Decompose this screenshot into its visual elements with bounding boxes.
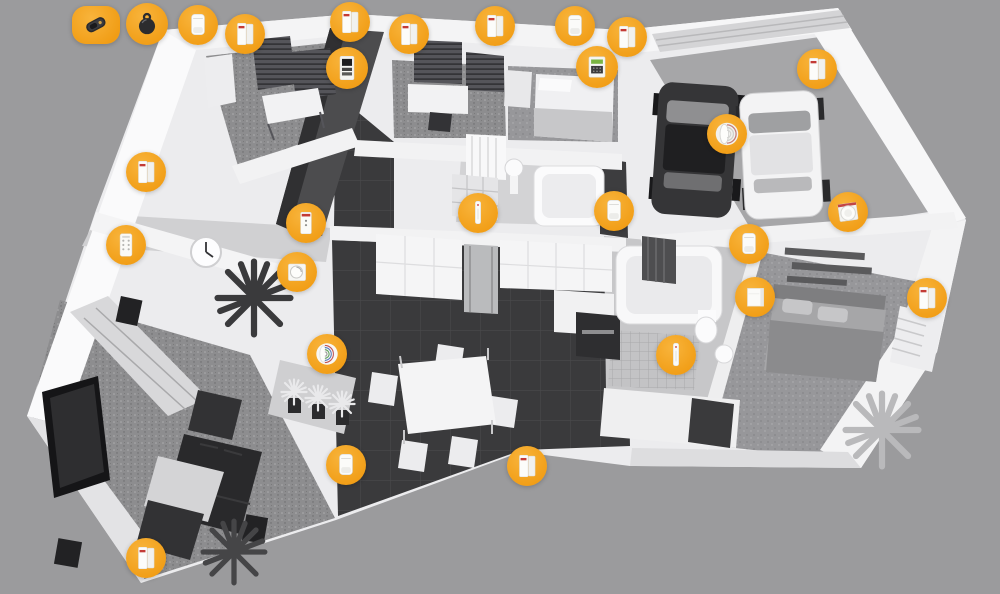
motion-detector-icon <box>734 229 764 259</box>
device-door-window-sensor[interactable] <box>907 278 947 318</box>
alarm-keypad-icon <box>582 52 612 82</box>
door-window-sensor-icon <box>912 283 942 313</box>
slim-sensor-icon <box>463 198 493 228</box>
device-door-window-sensor[interactable] <box>797 49 837 89</box>
device-door-window-sensor[interactable] <box>330 2 370 42</box>
key-badge-icon <box>132 9 162 39</box>
device-door-window-sensor[interactable] <box>389 14 429 54</box>
smoke-detector-icon <box>833 197 863 227</box>
device-motion-detector[interactable] <box>729 224 769 264</box>
device-alarm-keypad[interactable] <box>576 46 618 88</box>
outdoor-siren-icon <box>712 119 742 149</box>
floorplan-canvas <box>0 0 1000 594</box>
device-thermostat[interactable] <box>277 252 317 292</box>
device-smoke-detector[interactable] <box>828 192 868 232</box>
device-indoor-siren[interactable] <box>307 334 347 374</box>
device-remote-control[interactable] <box>72 6 120 44</box>
motion-detector-icon <box>331 450 361 480</box>
motion-detector-icon <box>599 196 629 226</box>
device-motion-detector[interactable] <box>326 445 366 485</box>
slim-sensor-icon <box>661 340 691 370</box>
device-door-window-sensor[interactable] <box>126 152 166 192</box>
door-window-sensor-icon <box>480 11 510 41</box>
motion-detector-icon <box>560 11 590 41</box>
device-door-window-sensor[interactable] <box>126 538 166 578</box>
mini-keypad-icon <box>111 230 141 260</box>
device-outdoor-siren[interactable] <box>707 114 747 154</box>
device-slim-sensor[interactable] <box>458 193 498 233</box>
device-motion-detector[interactable] <box>594 191 634 231</box>
door-window-sensor-icon <box>131 157 161 187</box>
motion-detector-icon <box>183 10 213 40</box>
door-window-sensor-icon <box>512 451 542 481</box>
door-window-sensor-icon <box>612 22 642 52</box>
wall-panel-icon <box>740 282 770 312</box>
device-key-badge[interactable] <box>126 3 168 45</box>
door-window-sensor-icon <box>131 543 161 573</box>
device-wall-panel[interactable] <box>735 277 775 317</box>
control-panel-icon <box>332 53 362 83</box>
device-door-window-sensor[interactable] <box>607 17 647 57</box>
device-slim-sensor[interactable] <box>656 335 696 375</box>
device-motion-detector[interactable] <box>178 5 218 45</box>
device-mini-keypad[interactable] <box>106 225 146 265</box>
door-window-sensor-icon <box>802 54 832 84</box>
device-wall-sensor[interactable] <box>286 203 326 243</box>
device-door-window-sensor[interactable] <box>225 14 265 54</box>
wall-sensor-icon <box>291 208 321 238</box>
device-control-panel[interactable] <box>326 47 368 89</box>
door-window-sensor-icon <box>394 19 424 49</box>
remote-control-icon <box>81 10 111 40</box>
thermostat-icon <box>282 257 312 287</box>
device-layer <box>0 0 1000 594</box>
indoor-siren-icon <box>312 339 342 369</box>
device-motion-detector[interactable] <box>555 6 595 46</box>
device-door-window-sensor[interactable] <box>507 446 547 486</box>
device-door-window-sensor[interactable] <box>475 6 515 46</box>
door-window-sensor-icon <box>335 7 365 37</box>
door-window-sensor-icon <box>230 19 260 49</box>
